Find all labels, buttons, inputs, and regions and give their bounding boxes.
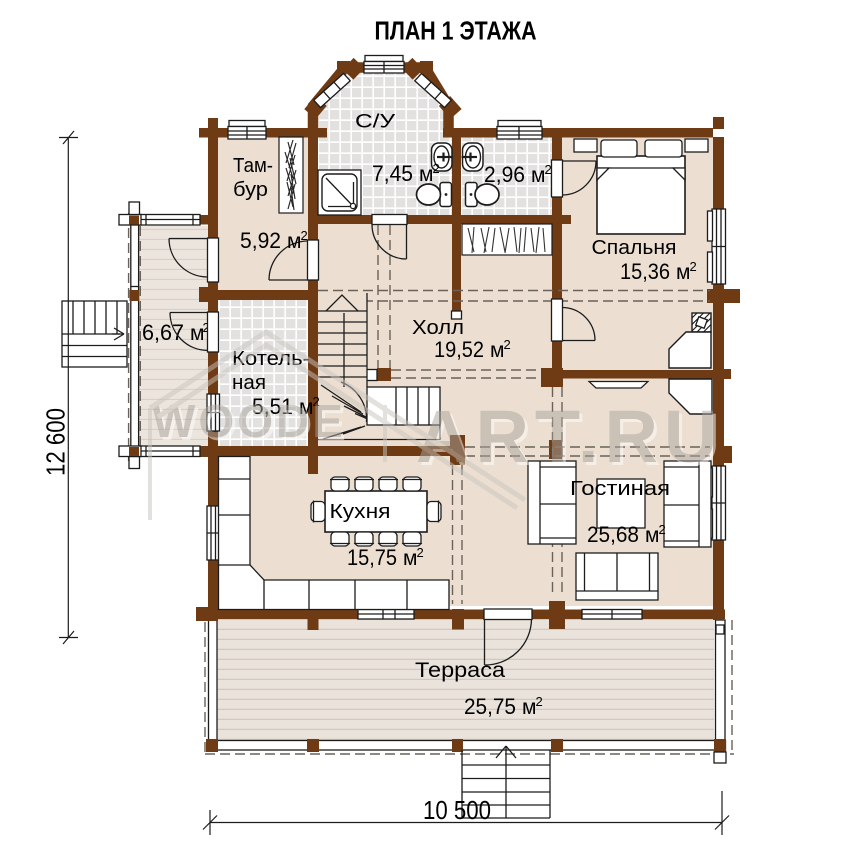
svg-text:10 500: 10 500: [423, 795, 491, 825]
svg-text:2: 2: [433, 161, 440, 176]
svg-text:25,75: 25,75: [464, 694, 516, 719]
svg-text:м: м: [531, 164, 545, 187]
svg-text:2: 2: [504, 337, 511, 352]
svg-text:ПЛАН 1 ЭТАЖА: ПЛАН 1 ЭТАЖА: [375, 16, 537, 46]
svg-text:12 600: 12 600: [41, 408, 71, 476]
svg-text:2: 2: [545, 162, 552, 177]
svg-text:19,52: 19,52: [434, 337, 484, 362]
svg-text:15,75: 15,75: [347, 545, 397, 570]
svg-text:Гостиная: Гостиная: [570, 478, 670, 500]
svg-text:ная: ная: [232, 372, 266, 394]
svg-text:Кухня: Кухня: [330, 501, 391, 523]
svg-text:15,36: 15,36: [620, 259, 670, 284]
svg-text:2: 2: [690, 259, 697, 274]
svg-text:С/У: С/У: [355, 111, 396, 133]
svg-text:5,92: 5,92: [240, 228, 281, 253]
svg-text:Терраса: Терраса: [415, 659, 505, 682]
svg-text:м: м: [287, 230, 301, 253]
svg-text:м: м: [490, 339, 504, 362]
svg-text:м: м: [419, 163, 433, 186]
svg-text:2: 2: [536, 694, 543, 709]
svg-text:м: м: [645, 524, 659, 547]
svg-text:бур: бур: [233, 179, 268, 201]
svg-text:2: 2: [417, 545, 424, 560]
svg-text:7,45: 7,45: [372, 161, 413, 186]
svg-text:м: м: [676, 261, 690, 284]
svg-text:2,96: 2,96: [484, 162, 525, 187]
svg-text:2: 2: [659, 522, 666, 537]
svg-text:6,67: 6,67: [142, 320, 184, 345]
svg-text:Спальня: Спальня: [592, 237, 677, 259]
svg-text:25,68: 25,68: [587, 522, 639, 547]
svg-text:2: 2: [301, 228, 308, 243]
svg-text:ART.RU: ART.RU: [416, 395, 723, 478]
svg-text:м: м: [522, 696, 536, 719]
svg-text:м: м: [403, 547, 417, 570]
svg-text:Холл: Холл: [412, 317, 464, 339]
svg-text:Там-: Там-: [233, 155, 273, 177]
